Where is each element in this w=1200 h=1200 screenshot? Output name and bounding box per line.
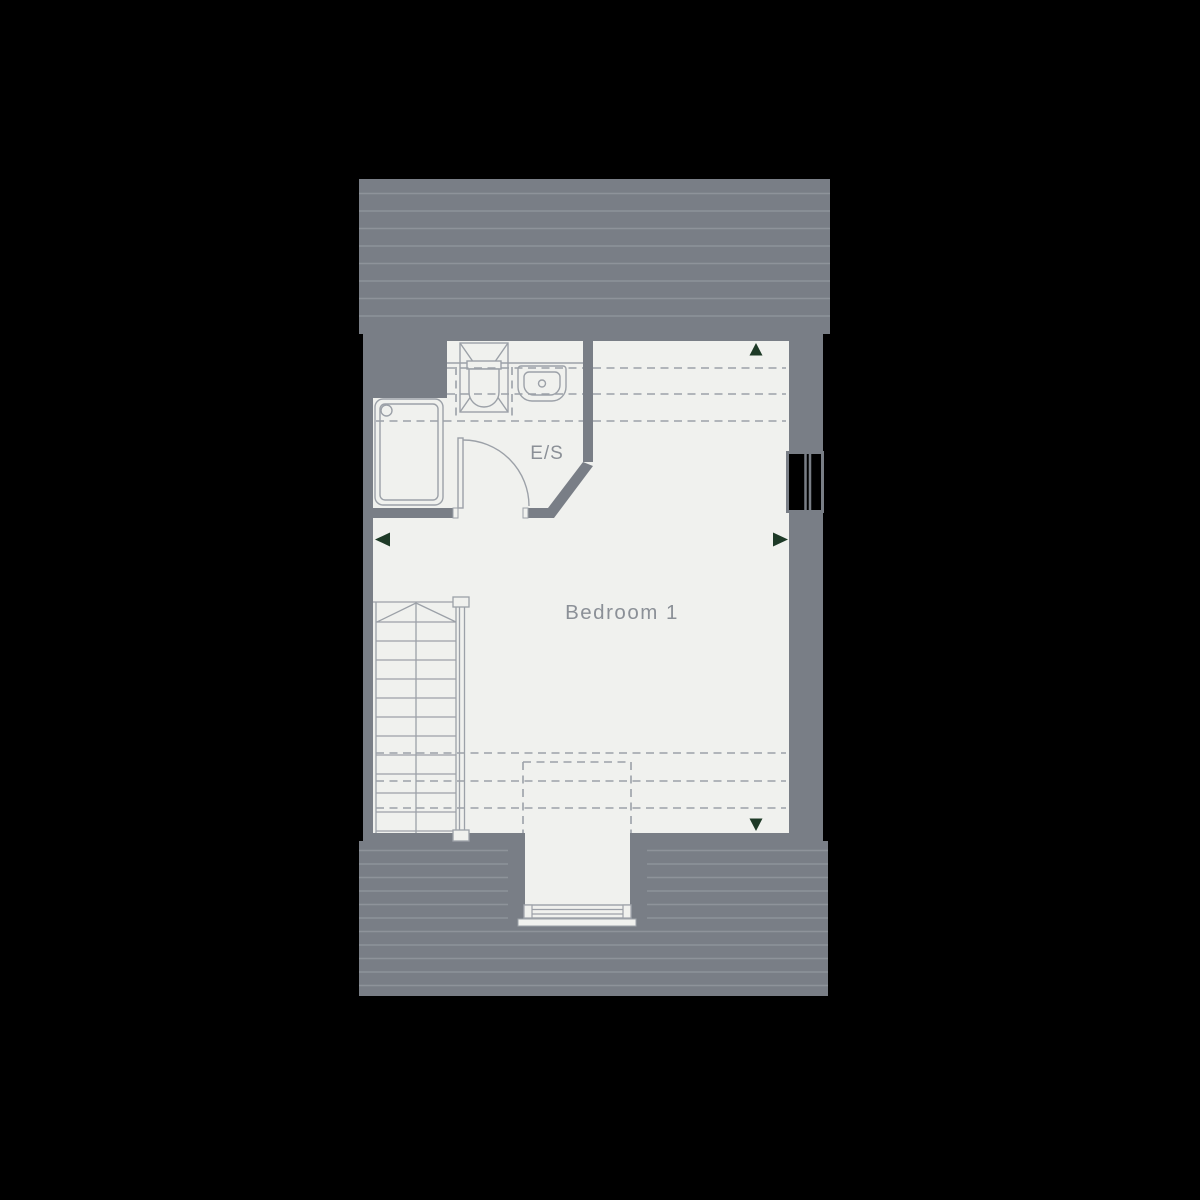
wall-right-eaves <box>789 332 823 843</box>
dormer-window-cap-right <box>623 905 631 918</box>
roof-top-slab <box>359 179 830 334</box>
ensuite-bottom-wall-left <box>373 508 453 518</box>
dormer-window <box>518 905 636 926</box>
handrail-newel-top <box>453 597 469 607</box>
dormer-wall-right <box>630 833 647 919</box>
dormer-window-sill <box>518 919 636 926</box>
dormer <box>508 833 647 926</box>
wc-pan <box>469 369 499 407</box>
wc-cistern <box>467 361 501 369</box>
dormer-window-cap-left <box>524 905 532 918</box>
bedroom-label: Bedroom 1 <box>565 601 679 624</box>
ensuite-bottom-wall-right <box>528 508 554 518</box>
dormer-window-frame <box>524 905 631 918</box>
ensuite-eaves-block <box>373 341 447 398</box>
handrail-newel-bottom <box>453 830 469 841</box>
door-jamb-left <box>453 508 458 518</box>
dormer-wall-left <box>508 833 525 919</box>
floorplan-svg: E/S Bedroom 1 <box>0 0 1200 1200</box>
basin-body <box>518 366 566 401</box>
floorplan-canvas: E/S Bedroom 1 <box>0 0 1200 1200</box>
dormer-floor <box>525 833 630 905</box>
eaves-window <box>788 453 823 512</box>
ensuite-divider-wall <box>583 341 593 462</box>
wall-left <box>363 332 373 843</box>
bath-outer <box>375 399 443 505</box>
wall-top <box>363 332 823 341</box>
roof-top <box>359 179 830 334</box>
ensuite-label: E/S <box>530 443 564 464</box>
door-leaf <box>458 438 463 508</box>
door-jamb-right <box>523 508 528 518</box>
